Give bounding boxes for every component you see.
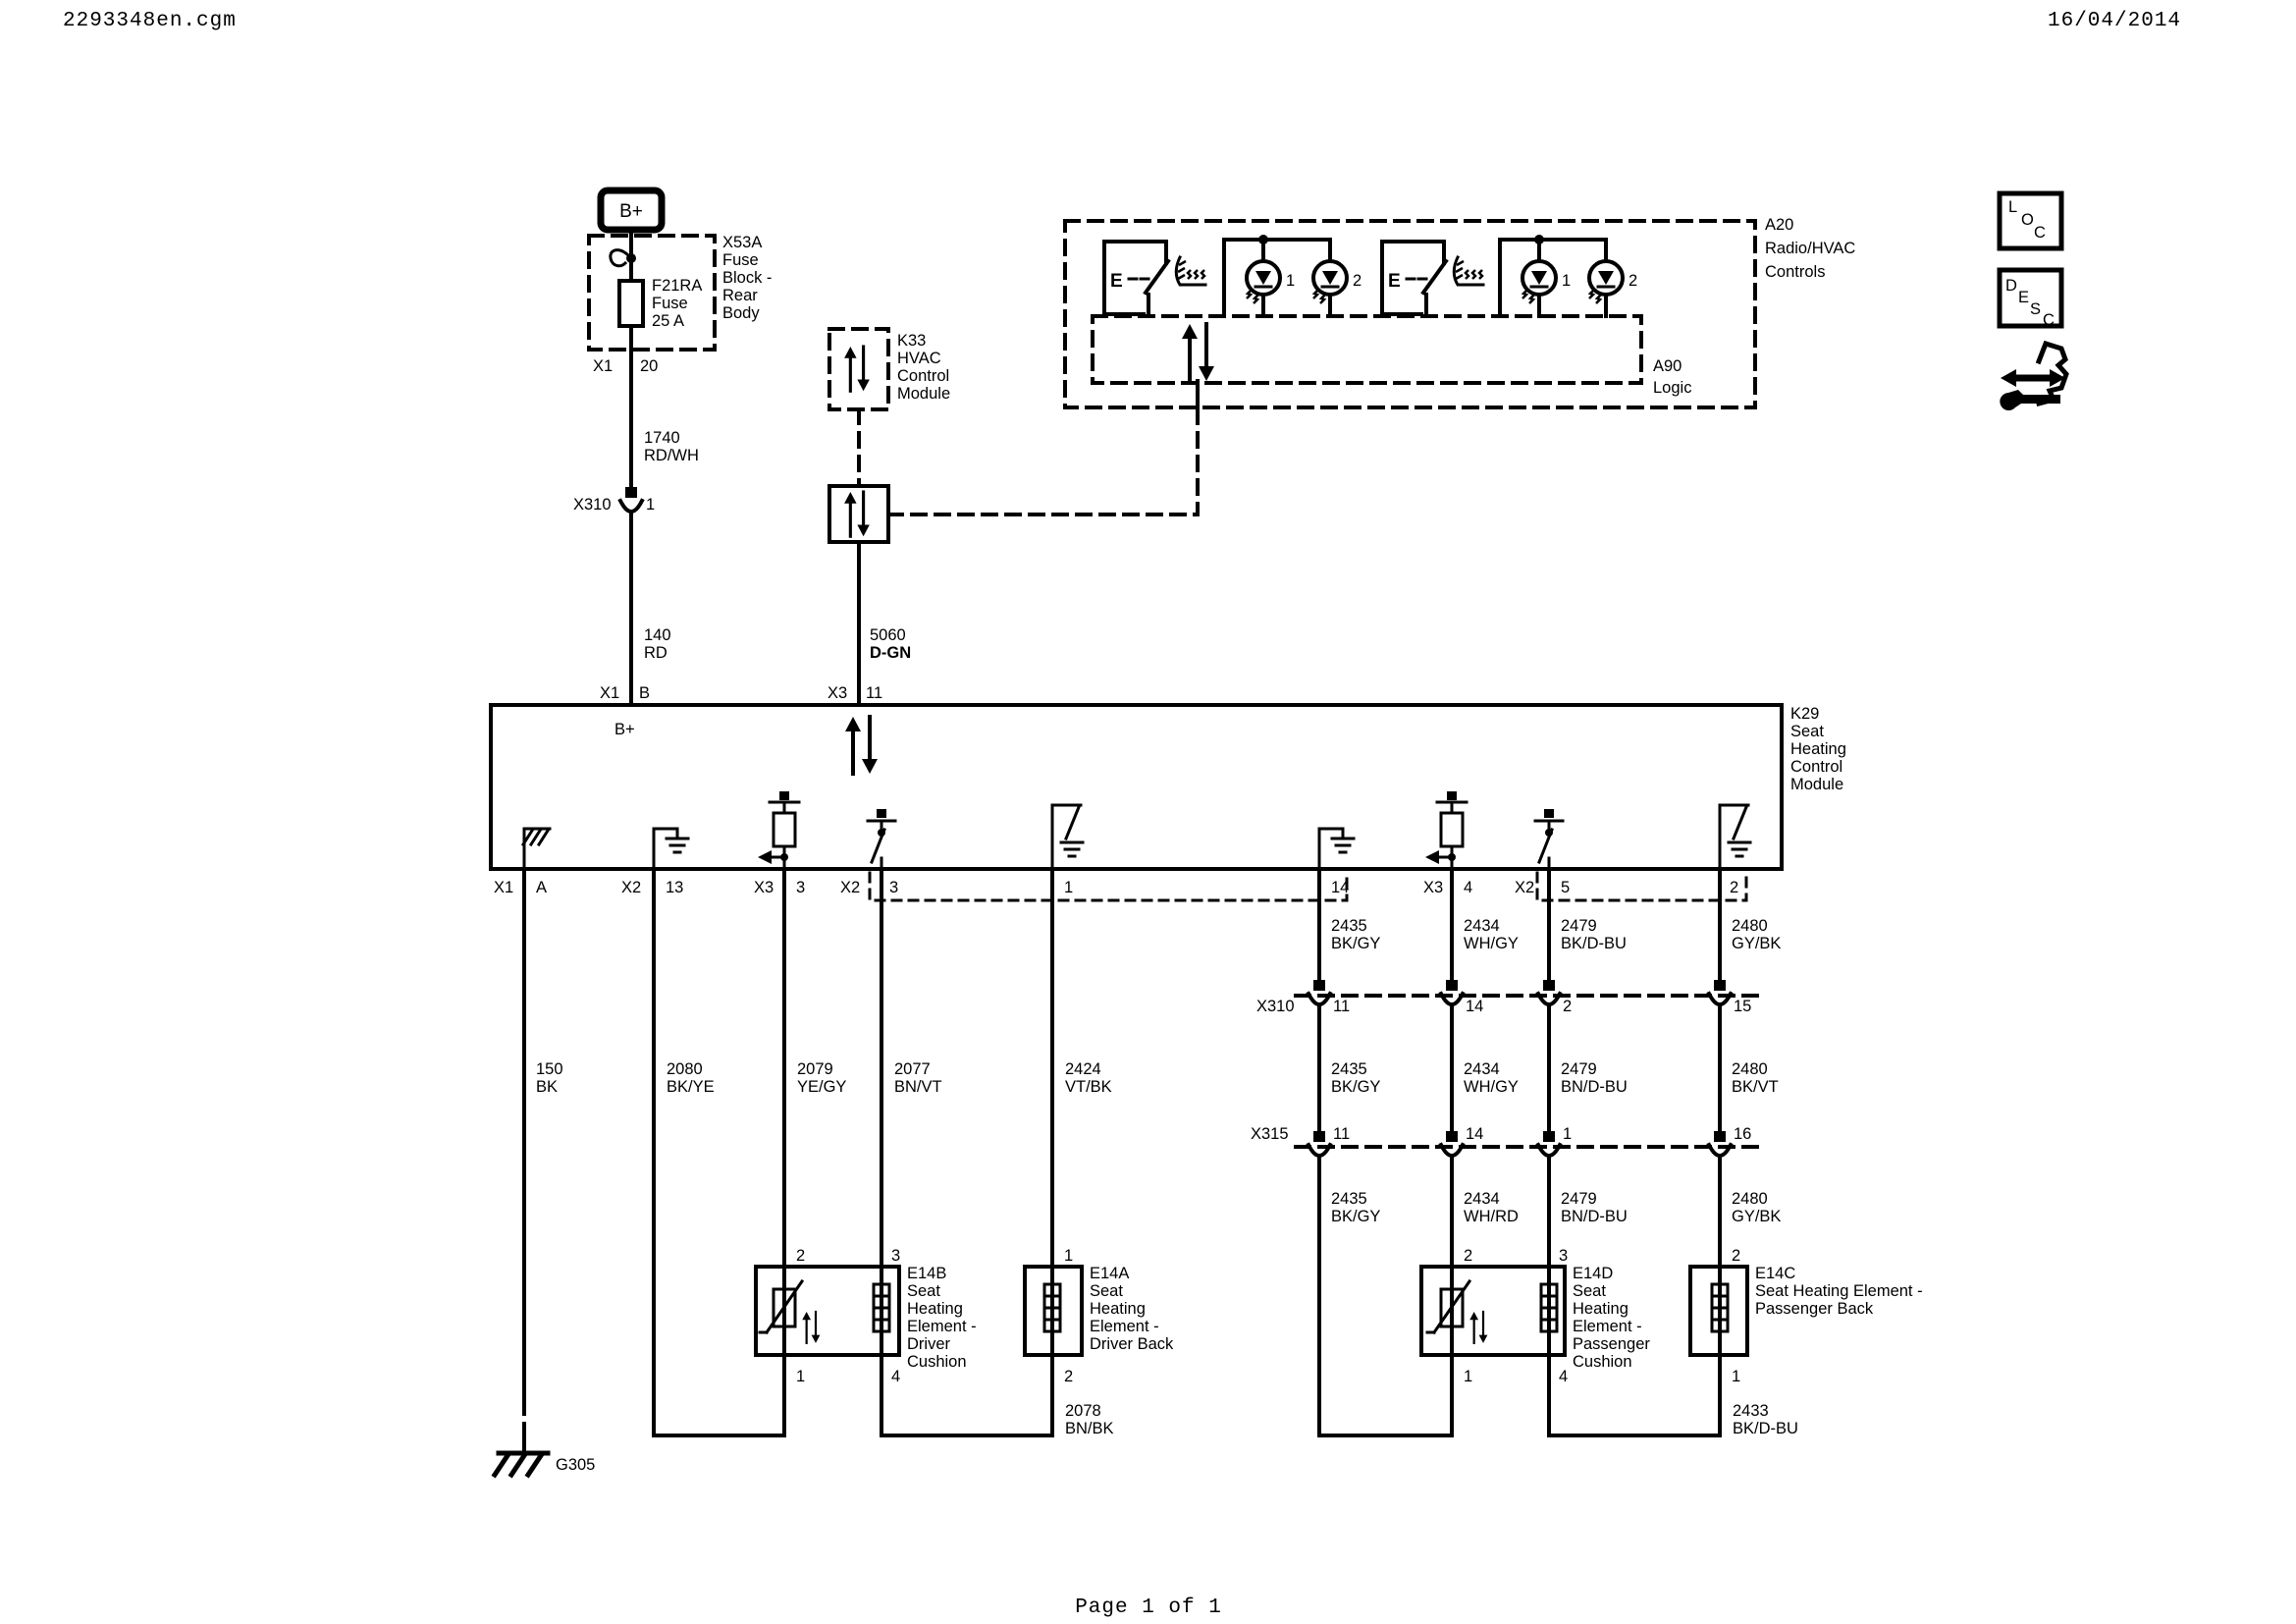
fuse-rating: 25 A [652, 312, 684, 330]
wire-id: 150 [536, 1060, 563, 1078]
k29-name: Seat [1790, 723, 1824, 740]
a90-name: Logic [1653, 379, 1691, 397]
fuse-block-ref: X53A [722, 234, 762, 251]
pin-num: 4 [891, 1368, 900, 1385]
wire-color: BN/BK [1065, 1420, 1114, 1437]
desc-letter: D [2005, 277, 2017, 295]
led-label: 1 [1562, 272, 1571, 290]
element-name: Cushion [907, 1353, 967, 1371]
connector-pin: 14 [1466, 1125, 1483, 1143]
connector-name: X315 [1251, 1125, 1289, 1143]
wire-color: VT/BK [1065, 1078, 1112, 1096]
wire-id: 2480 [1732, 1060, 1768, 1078]
wire-color: BK/VT [1732, 1078, 1779, 1096]
wire-id: 2077 [894, 1060, 931, 1078]
wire-id: 5060 [870, 626, 906, 644]
pin-num: 1 [1064, 879, 1073, 896]
wire-id: 2435 [1331, 1190, 1367, 1208]
element-name: Heating [1090, 1300, 1146, 1318]
wire-color: WH/GY [1464, 935, 1519, 952]
desc-letter: S [2030, 300, 2041, 318]
wire-color: BK/YE [667, 1078, 715, 1096]
wire-color: GY/BK [1732, 1208, 1781, 1225]
fuse-pin-num: 20 [640, 357, 658, 375]
connector-pin: 16 [1734, 1125, 1751, 1143]
pin-conn: X3 [754, 879, 774, 896]
element-ref: E14C [1755, 1265, 1795, 1282]
a20-name: Controls [1765, 263, 1825, 281]
ground-ref: G305 [556, 1456, 595, 1474]
wire-color: RD [644, 644, 667, 662]
connector-name: X310 [1256, 998, 1295, 1015]
loc-letter: L [2008, 198, 2017, 216]
element-ref: E14A [1090, 1265, 1129, 1282]
k29-ref: K29 [1790, 705, 1819, 723]
element-name: Seat [907, 1282, 940, 1300]
page-number: Page 1 of 1 [1075, 1597, 1222, 1619]
element-name: Cushion [1573, 1353, 1632, 1371]
pin-conn: X2 [1515, 879, 1534, 896]
pin-num: 1 [796, 1368, 805, 1385]
connector-pin: 14 [1466, 998, 1483, 1015]
wire-id: 2078 [1065, 1402, 1101, 1420]
wire-id: 2080 [667, 1060, 703, 1078]
pin-num: 2 [1732, 1247, 1740, 1265]
pin-num: 5 [1561, 879, 1570, 896]
k29-pin-num: 11 [866, 684, 882, 702]
fuse-ref: F21RA [652, 277, 702, 295]
k33-ref: K33 [897, 332, 926, 350]
element-name: Driver [907, 1335, 951, 1353]
a20-ref: A20 [1765, 216, 1793, 234]
wire-color: BK/GY [1331, 1208, 1380, 1225]
connector-pin: 15 [1734, 998, 1751, 1015]
pin-num: 3 [891, 1247, 900, 1265]
pin-num: 4 [1464, 879, 1472, 896]
element-name: Element - [1090, 1318, 1159, 1335]
fuse-block-name: Body [722, 304, 760, 322]
a20-name: Radio/HVAC [1765, 240, 1855, 257]
pin-conn: X3 [1423, 879, 1443, 896]
led-label: 1 [1286, 272, 1295, 290]
fuse-pin-conn: X1 [593, 357, 613, 375]
k29-bplus-label: B+ [614, 721, 635, 738]
junction-dot [1534, 235, 1544, 244]
wire-color: WH/GY [1464, 1078, 1519, 1096]
pin-num: A [536, 879, 547, 896]
connector-pin: 11 [1333, 998, 1350, 1015]
desc-letter: C [2043, 311, 2055, 329]
desc-letter: E [2018, 289, 2029, 306]
fuse-block-name: Rear [722, 287, 758, 304]
wire-id: 140 [644, 626, 671, 644]
wire-id: 1740 [644, 429, 680, 447]
wire-id: 2480 [1732, 1190, 1768, 1208]
wire-color: WH/RD [1464, 1208, 1519, 1225]
loc-letter: C [2034, 224, 2046, 242]
pin-num: 13 [666, 879, 683, 896]
wire-color: BK [536, 1078, 558, 1096]
wire-id: 2434 [1464, 1190, 1500, 1208]
element-name: Element - [1573, 1318, 1642, 1335]
pin-num: 3 [796, 879, 805, 896]
wire-id: 2479 [1561, 1060, 1597, 1078]
connector-name: X310 [573, 496, 612, 514]
element-name: Seat [1090, 1282, 1123, 1300]
k29-name: Control [1790, 758, 1842, 776]
wire-color: BK/GY [1331, 1078, 1380, 1096]
element-name: Heating [1573, 1300, 1629, 1318]
wire-id: 2434 [1464, 1060, 1500, 1078]
pin-num: 2 [796, 1247, 805, 1265]
wiring-diagram-page: 2293348en.cgm 16/04/2014 B+ F21RA Fuse 2… [0, 0, 2296, 1624]
element-name: Seat Heating Element - [1755, 1282, 1923, 1300]
connector-pin: 1 [1563, 1125, 1572, 1143]
wire-id: 2424 [1065, 1060, 1101, 1078]
pin-num: 1 [1464, 1368, 1472, 1385]
pin-conn: X2 [840, 879, 860, 896]
wire-color: BN/D-BU [1561, 1078, 1628, 1096]
k29-name: Module [1790, 776, 1843, 793]
k29-pin-conn: X1 [600, 684, 619, 702]
a90-ref: A90 [1653, 357, 1682, 375]
loc-letter: O [2021, 211, 2034, 229]
switch1-label: E [1110, 271, 1123, 292]
date-label: 16/04/2014 [2048, 10, 2181, 32]
pin-num: 3 [1559, 1247, 1568, 1265]
wire-color: BN/D-BU [1561, 1208, 1628, 1225]
battery-label: B+ [619, 201, 643, 222]
wire-id: 2434 [1464, 917, 1500, 935]
element-name: Passenger [1573, 1335, 1650, 1353]
k33-name: Module [897, 385, 950, 403]
wire-id: 2479 [1561, 917, 1597, 935]
wire-id: 2433 [1733, 1402, 1769, 1420]
pin-num: 1 [1064, 1247, 1073, 1265]
wire-color: YE/GY [797, 1078, 846, 1096]
pin-num: 2 [1064, 1368, 1073, 1385]
wire-color: BK/GY [1331, 935, 1380, 952]
wire-color: BK/D-BU [1733, 1420, 1798, 1437]
element-ref: E14B [907, 1265, 946, 1282]
element-name: Passenger Back [1755, 1300, 1874, 1318]
element-name: Element - [907, 1318, 977, 1335]
pin-num: 2 [1464, 1247, 1472, 1265]
fuse-block-name: Fuse [722, 251, 759, 269]
k33-name: Control [897, 367, 949, 385]
wire-id: 2479 [1561, 1190, 1597, 1208]
pin-conn: X2 [621, 879, 641, 896]
fuse-block-name: Block - [722, 269, 772, 287]
element-name: Driver Back [1090, 1335, 1174, 1353]
connector-pin: 2 [1563, 998, 1572, 1015]
pin-conn: X1 [494, 879, 513, 896]
k29-pin-num: B [639, 684, 650, 702]
wire-color: BK/D-BU [1561, 935, 1627, 952]
wire-id: 2435 [1331, 1060, 1367, 1078]
wire-id: 2480 [1732, 917, 1768, 935]
connector-pin: 11 [1333, 1125, 1350, 1143]
pin-num: 2 [1730, 879, 1738, 896]
switch2-label: E [1388, 271, 1401, 292]
led-label: 2 [1353, 272, 1362, 290]
paper-background [0, 0, 2296, 1624]
k29-pin-conn: X3 [828, 684, 847, 702]
wire-color: RD/WH [644, 447, 699, 464]
wiring-diagram-canvas: 2293348en.cgm 16/04/2014 B+ F21RA Fuse 2… [0, 0, 2296, 1624]
pin-num: 3 [889, 879, 898, 896]
wire-id: 2079 [797, 1060, 833, 1078]
wire-color: GY/BK [1732, 935, 1781, 952]
connector-pin: 1 [646, 496, 655, 514]
pin-num: 4 [1559, 1368, 1568, 1385]
element-name: Seat [1573, 1282, 1606, 1300]
pin-num: 1 [1732, 1368, 1740, 1385]
file-name: 2293348en.cgm [63, 10, 237, 32]
k29-name: Heating [1790, 740, 1846, 758]
element-name: Heating [907, 1300, 963, 1318]
junction-dot [1258, 235, 1268, 244]
wire-color: BN/VT [894, 1078, 942, 1096]
wire-color: D-GN [870, 644, 911, 662]
wire-id: 2435 [1331, 917, 1367, 935]
led-label: 2 [1629, 272, 1637, 290]
element-ref: E14D [1573, 1265, 1613, 1282]
k33-name: HVAC [897, 350, 941, 367]
fuse-kind: Fuse [652, 295, 688, 312]
